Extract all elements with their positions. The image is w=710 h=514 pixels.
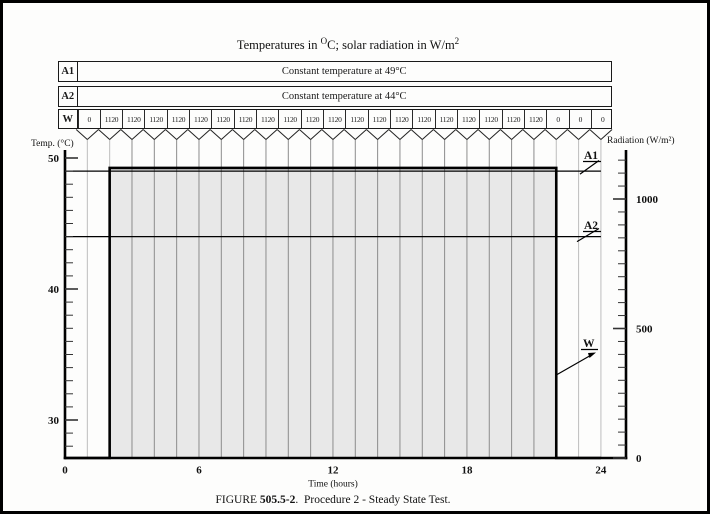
funnel-arrow-right	[378, 130, 389, 140]
funnel-arrow-right	[489, 130, 500, 140]
caption-figure-word: FIGURE	[215, 494, 259, 506]
funnel-arrow-left	[232, 130, 243, 140]
funnel-arrow-right	[311, 130, 322, 140]
funnel-arrow-left	[590, 130, 601, 140]
funnel-arrow-right	[534, 130, 545, 140]
funnel-arrow-right	[87, 130, 98, 140]
caption-period: .	[295, 494, 304, 506]
funnel-arrow-left	[366, 130, 377, 140]
funnel-arrow-left	[567, 130, 578, 140]
time-tick-label: 24	[595, 465, 607, 477]
time-tick-label: 12	[327, 465, 339, 477]
time-axis-title: Time (hours)	[308, 479, 358, 490]
time-tick-label: 18	[461, 465, 473, 477]
a1-pointer-line	[580, 161, 599, 175]
funnel-arrow-left	[456, 130, 467, 140]
w-arrow-head	[588, 353, 596, 359]
temp-axis-title: Temp. (°C)	[31, 138, 74, 149]
funnel-arrow-left	[433, 130, 444, 140]
funnel-arrow-left	[255, 130, 266, 140]
funnel-arrow-right	[244, 130, 255, 140]
radiation-axis-title: Radiation (W/m²)	[607, 135, 674, 146]
funnel-arrow-right	[422, 130, 433, 140]
time-tick-label: 6	[196, 465, 202, 477]
funnel-arrow-left	[344, 130, 355, 140]
funnel-arrow-left	[500, 130, 511, 140]
funnel-arrow-left	[545, 130, 556, 140]
funnel-arrow-right	[355, 130, 366, 140]
funnel-arrow-left	[188, 130, 199, 140]
funnel-arrow-right	[400, 130, 411, 140]
funnel-arrow-right	[177, 130, 188, 140]
w-curve-label: W	[583, 338, 595, 350]
funnel-arrow-right	[266, 130, 277, 140]
temp-tick-label: 30	[48, 415, 60, 427]
funnel-arrow-right	[445, 130, 456, 140]
page-frame: Temperatures in OC; solar radiation in W…	[0, 0, 710, 514]
chart-svg: 3040500500100006121824Time (hours)Temp. …	[3, 3, 710, 514]
funnel-arrow-left	[143, 130, 154, 140]
funnel-arrow-left	[277, 130, 288, 140]
caption-text: Procedure 2 - Steady State Test.	[304, 494, 451, 506]
funnel-arrow-right	[467, 130, 478, 140]
w-arrow-line	[556, 354, 593, 375]
figure-caption: FIGURE 505.5-2. Procedure 2 - Steady Sta…	[3, 494, 663, 506]
caption-figure-number: 505.5-2	[260, 494, 295, 506]
funnel-arrow-right	[333, 130, 344, 140]
funnel-arrow-right	[556, 130, 567, 140]
funnel-arrow-left	[322, 130, 333, 140]
funnel-arrow-left	[165, 130, 176, 140]
radiation-tick-label: 0	[636, 453, 642, 465]
funnel-arrow-right	[154, 130, 165, 140]
radiation-tick-label: 1000	[636, 194, 659, 206]
funnel-arrow-right	[110, 130, 121, 140]
funnel-arrow-left	[98, 130, 109, 140]
radiation-tick-label: 500	[636, 323, 653, 335]
funnel-arrow-right	[221, 130, 232, 140]
funnel-arrow-left	[411, 130, 422, 140]
funnel-arrow-right	[288, 130, 299, 140]
funnel-arrow-left	[478, 130, 489, 140]
temp-tick-label: 40	[48, 284, 60, 296]
funnel-arrow-left	[121, 130, 132, 140]
funnel-arrow-right	[132, 130, 143, 140]
a1-curve-label: A1	[584, 150, 598, 162]
funnel-arrow-right	[579, 130, 590, 140]
funnel-arrow-right	[199, 130, 210, 140]
time-tick-label: 0	[62, 465, 68, 477]
funnel-arrow-left	[299, 130, 310, 140]
funnel-arrow-left	[523, 130, 534, 140]
funnel-arrow-left	[76, 130, 87, 140]
funnel-arrow-right	[512, 130, 523, 140]
funnel-arrow-left	[210, 130, 221, 140]
temp-tick-label: 50	[48, 153, 60, 165]
funnel-arrow-left	[389, 130, 400, 140]
